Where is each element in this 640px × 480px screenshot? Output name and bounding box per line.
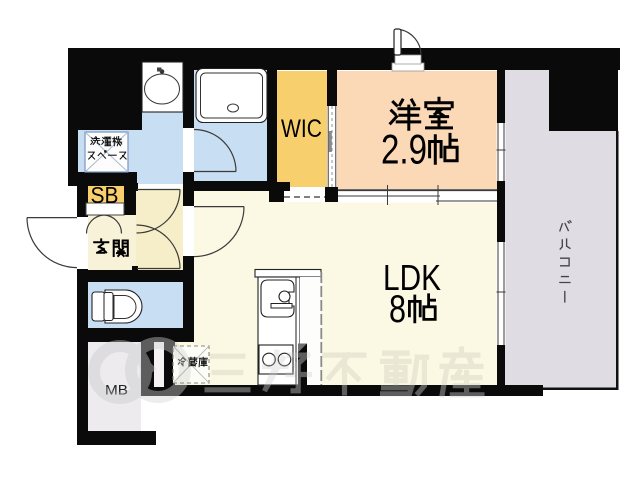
svg-text:WIC: WIC <box>281 115 322 143</box>
svg-text:8: 8 <box>389 288 406 331</box>
svg-text:SB: SB <box>91 182 119 208</box>
svg-text:2.9: 2.9 <box>381 126 427 173</box>
